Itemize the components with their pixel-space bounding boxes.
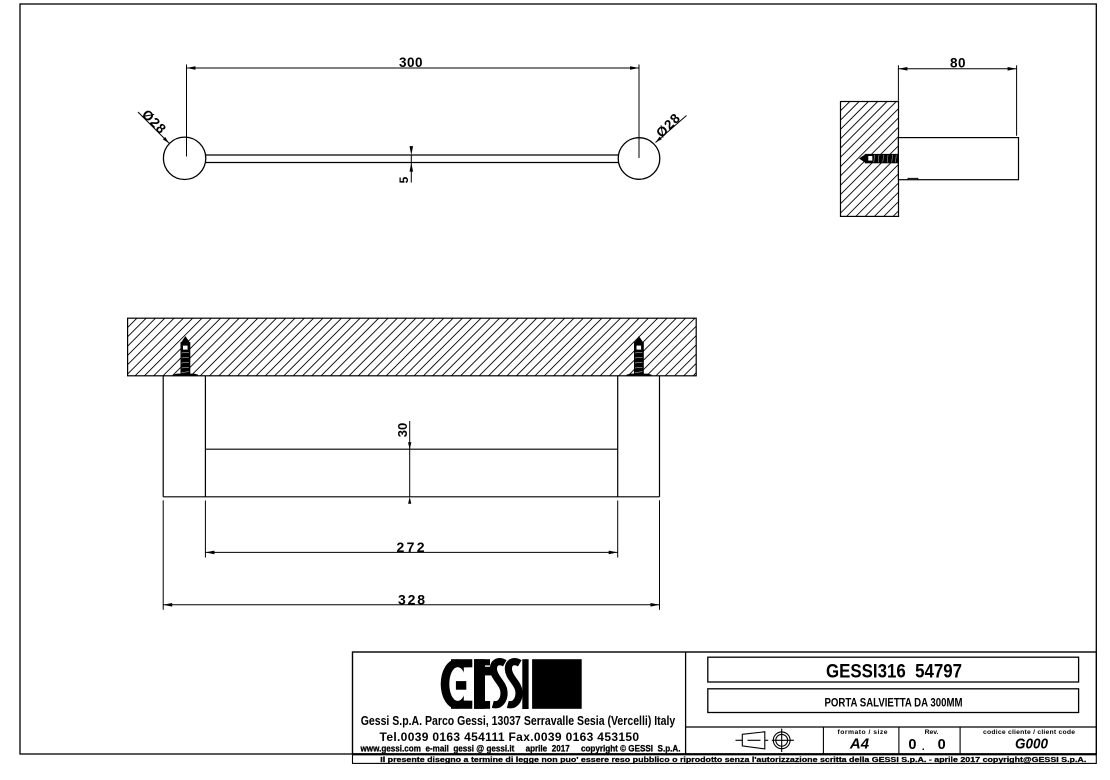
svg-text:0: 0: [938, 737, 946, 753]
svg-text:A4: A4: [849, 736, 870, 753]
svg-text:80: 80: [950, 56, 966, 71]
svg-text:272: 272: [397, 539, 425, 555]
svg-text:Tel.0039 0163 454111 Fax.0039: Tel.0039 0163 454111 Fax.0039 0163 45315…: [380, 730, 640, 744]
svg-text:www.gessi.com e-mail gessi @: www.gessi.com e-mail gessi @ gessi.it ap…: [360, 743, 681, 753]
svg-text:30: 30: [395, 423, 410, 437]
svg-text:328: 328: [398, 591, 425, 607]
svg-text:300: 300: [399, 55, 423, 70]
svg-text:.: .: [922, 742, 925, 753]
svg-text:Il presente disegno a termine: Il presente disegno a termine di legge n…: [380, 757, 1086, 764]
svg-text:0: 0: [908, 737, 916, 753]
svg-text:Rev.: Rev.: [925, 729, 939, 736]
svg-text:GESSI316 54797: GESSI316 54797: [826, 661, 962, 683]
svg-text:PORTA SALVIETTA DA 300MM: PORTA SALVIETTA DA 300MM: [825, 695, 963, 709]
svg-text:5: 5: [397, 176, 411, 183]
svg-text:G000: G000: [1015, 736, 1049, 753]
svg-text:Gessi S.p.A. Parco Gessi, 1303: Gessi S.p.A. Parco Gessi, 13037 Serraval…: [361, 713, 676, 728]
